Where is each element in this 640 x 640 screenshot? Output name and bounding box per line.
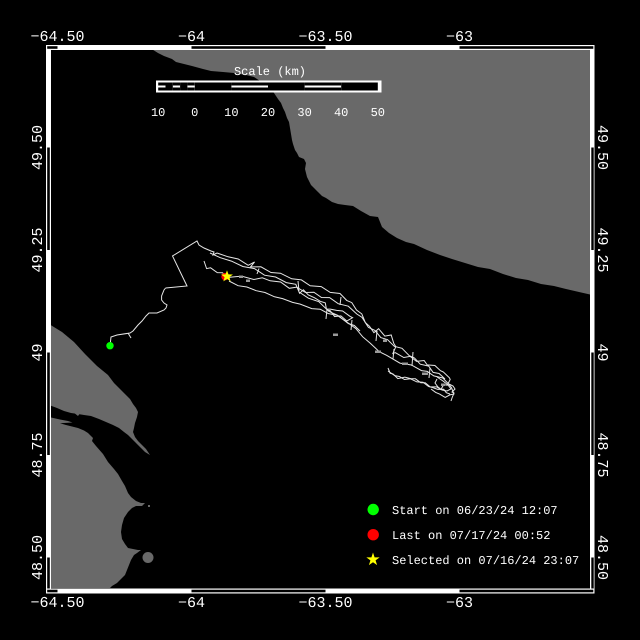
svg-text:20: 20 (261, 106, 275, 120)
svg-text:49.25: 49.25 (30, 227, 47, 272)
svg-text:−64: −64 (178, 595, 205, 612)
svg-text:30: 30 (297, 106, 311, 120)
svg-text:48.50: 48.50 (30, 535, 47, 580)
svg-text:49: 49 (593, 343, 610, 361)
svg-text:−64.50: −64.50 (30, 29, 84, 46)
svg-text:Scale (km): Scale (km) (234, 65, 306, 79)
svg-text:Last on 07/17/24 00:52: Last on 07/17/24 00:52 (392, 529, 550, 543)
svg-text:49.25: 49.25 (593, 227, 610, 272)
svg-text:−64.50: −64.50 (30, 595, 84, 612)
svg-text:−63.50: −63.50 (298, 595, 352, 612)
svg-text:50: 50 (371, 106, 385, 120)
svg-text:−64: −64 (178, 29, 205, 46)
svg-text:Selected on 07/16/24 23:07: Selected on 07/16/24 23:07 (392, 554, 579, 568)
svg-text:49.50: 49.50 (30, 125, 47, 170)
svg-text:49: 49 (30, 343, 47, 361)
svg-text:10: 10 (224, 106, 238, 120)
svg-text:40: 40 (334, 106, 348, 120)
svg-text:−63: −63 (446, 29, 473, 46)
svg-text:10: 10 (151, 106, 165, 120)
svg-text:48.75: 48.75 (593, 432, 610, 477)
svg-text:0: 0 (191, 106, 198, 120)
svg-text:Start on 06/23/24 12:07: Start on 06/23/24 12:07 (392, 504, 558, 518)
svg-text:−63.50: −63.50 (298, 29, 352, 46)
svg-text:48.50: 48.50 (593, 535, 610, 580)
svg-text:48.75: 48.75 (30, 432, 47, 477)
svg-text:49.50: 49.50 (593, 125, 610, 170)
svg-text:−63: −63 (446, 595, 473, 612)
